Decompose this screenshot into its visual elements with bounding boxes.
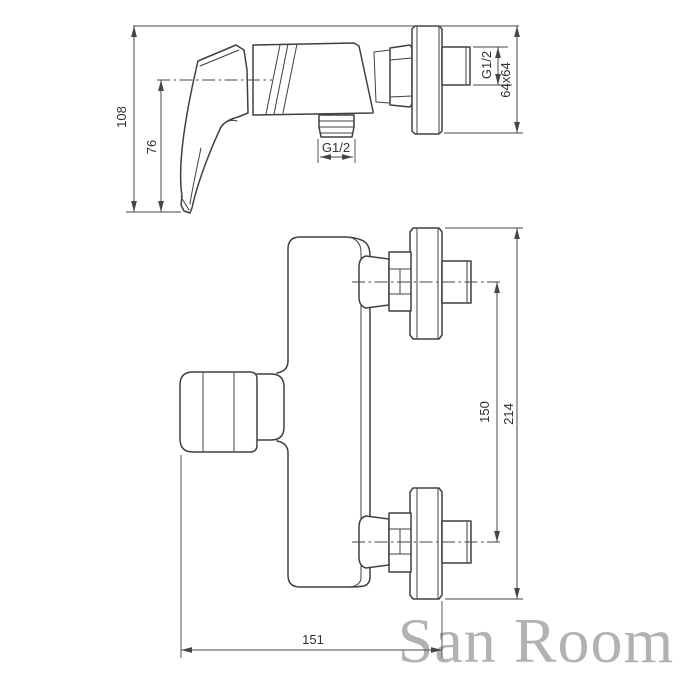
side-view-drawing: 108 76 G1/2 G1/2 64x64 <box>114 26 523 213</box>
side-view-overall-height-label: 108 <box>114 106 129 128</box>
front-view-top-wall-flange <box>410 228 442 339</box>
shower-mixer-technical-drawing: 108 76 G1/2 G1/2 64x64 <box>0 0 685 678</box>
front-view-overall-width-label: 151 <box>302 632 324 647</box>
side-view-hex-nut <box>390 45 412 107</box>
front-view-connection-spacing-label: 150 <box>477 401 492 423</box>
side-view-outlet-thread-label: G1/2 <box>322 140 350 155</box>
front-view-handle-collar <box>257 374 284 440</box>
side-view-body <box>253 43 373 115</box>
front-view-bottom-wall-flange <box>410 488 442 599</box>
front-view-body <box>277 237 370 587</box>
technical-drawing-page: 108 76 G1/2 G1/2 64x64 <box>0 0 685 678</box>
side-view-connector-thread-label: G1/2 <box>479 51 494 79</box>
side-view-flange-size-label: 64x64 <box>498 62 513 97</box>
front-view-handle-knob <box>180 372 257 452</box>
side-view-lever-handle <box>181 45 248 213</box>
front-view-overall-span-label: 214 <box>501 403 516 425</box>
side-view-outlet <box>319 115 354 137</box>
watermark-text: San Room <box>398 605 674 676</box>
side-view-handle-height-label: 76 <box>144 140 159 154</box>
front-view-drawing: San Room 150 214 151 <box>180 228 674 676</box>
